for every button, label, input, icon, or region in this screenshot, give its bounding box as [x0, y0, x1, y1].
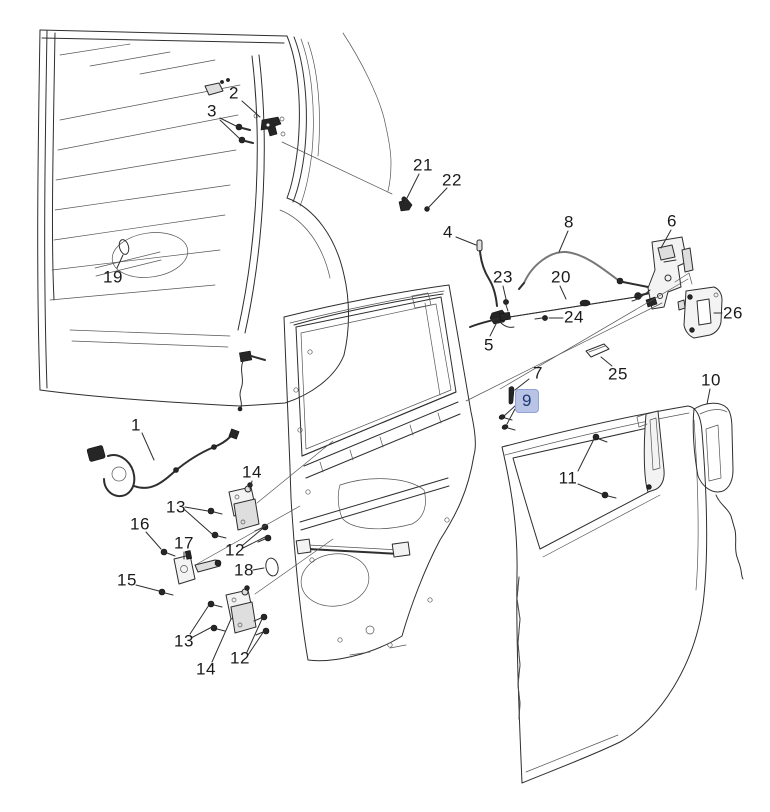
callout-17[interactable]: 17 — [174, 535, 194, 552]
callout-14[interactable]: 14 — [196, 661, 216, 678]
callout-3[interactable]: 3 — [207, 103, 217, 120]
callout-10[interactable]: 10 — [701, 372, 721, 389]
callout-13[interactable]: 13 — [166, 499, 186, 516]
callout-24[interactable]: 24 — [564, 309, 584, 326]
callout-20[interactable]: 20 — [551, 269, 571, 286]
callout-layer: 2319212248623202426525791011114131617121… — [0, 0, 770, 812]
callout-11[interactable]: 11 — [559, 470, 578, 487]
callout-23[interactable]: 23 — [493, 269, 513, 286]
callout-13[interactable]: 13 — [174, 633, 194, 650]
callout-2[interactable]: 2 — [229, 85, 239, 102]
callout-18[interactable]: 18 — [234, 562, 254, 579]
callout-12[interactable]: 12 — [230, 650, 250, 667]
callout-8[interactable]: 8 — [564, 214, 574, 231]
callout-14[interactable]: 14 — [242, 464, 262, 481]
callout-22[interactable]: 22 — [442, 172, 462, 189]
callout-12[interactable]: 12 — [225, 542, 245, 559]
callout-25[interactable]: 25 — [608, 366, 628, 383]
callout-5[interactable]: 5 — [484, 337, 494, 354]
callout-6[interactable]: 6 — [667, 213, 677, 230]
parts-diagram-canvas: 2319212248623202426525791011114131617121… — [0, 0, 770, 812]
callout-21[interactable]: 21 — [413, 157, 433, 174]
callout-1[interactable]: 1 — [131, 417, 141, 434]
callout-15[interactable]: 15 — [117, 572, 137, 589]
callout-19[interactable]: 19 — [103, 269, 123, 286]
callout-26[interactable]: 26 — [723, 305, 743, 322]
callout-4[interactable]: 4 — [443, 224, 453, 241]
callout-9-selected[interactable]: 9 — [515, 389, 539, 413]
callout-16[interactable]: 16 — [130, 516, 150, 533]
callout-7[interactable]: 7 — [533, 365, 543, 382]
